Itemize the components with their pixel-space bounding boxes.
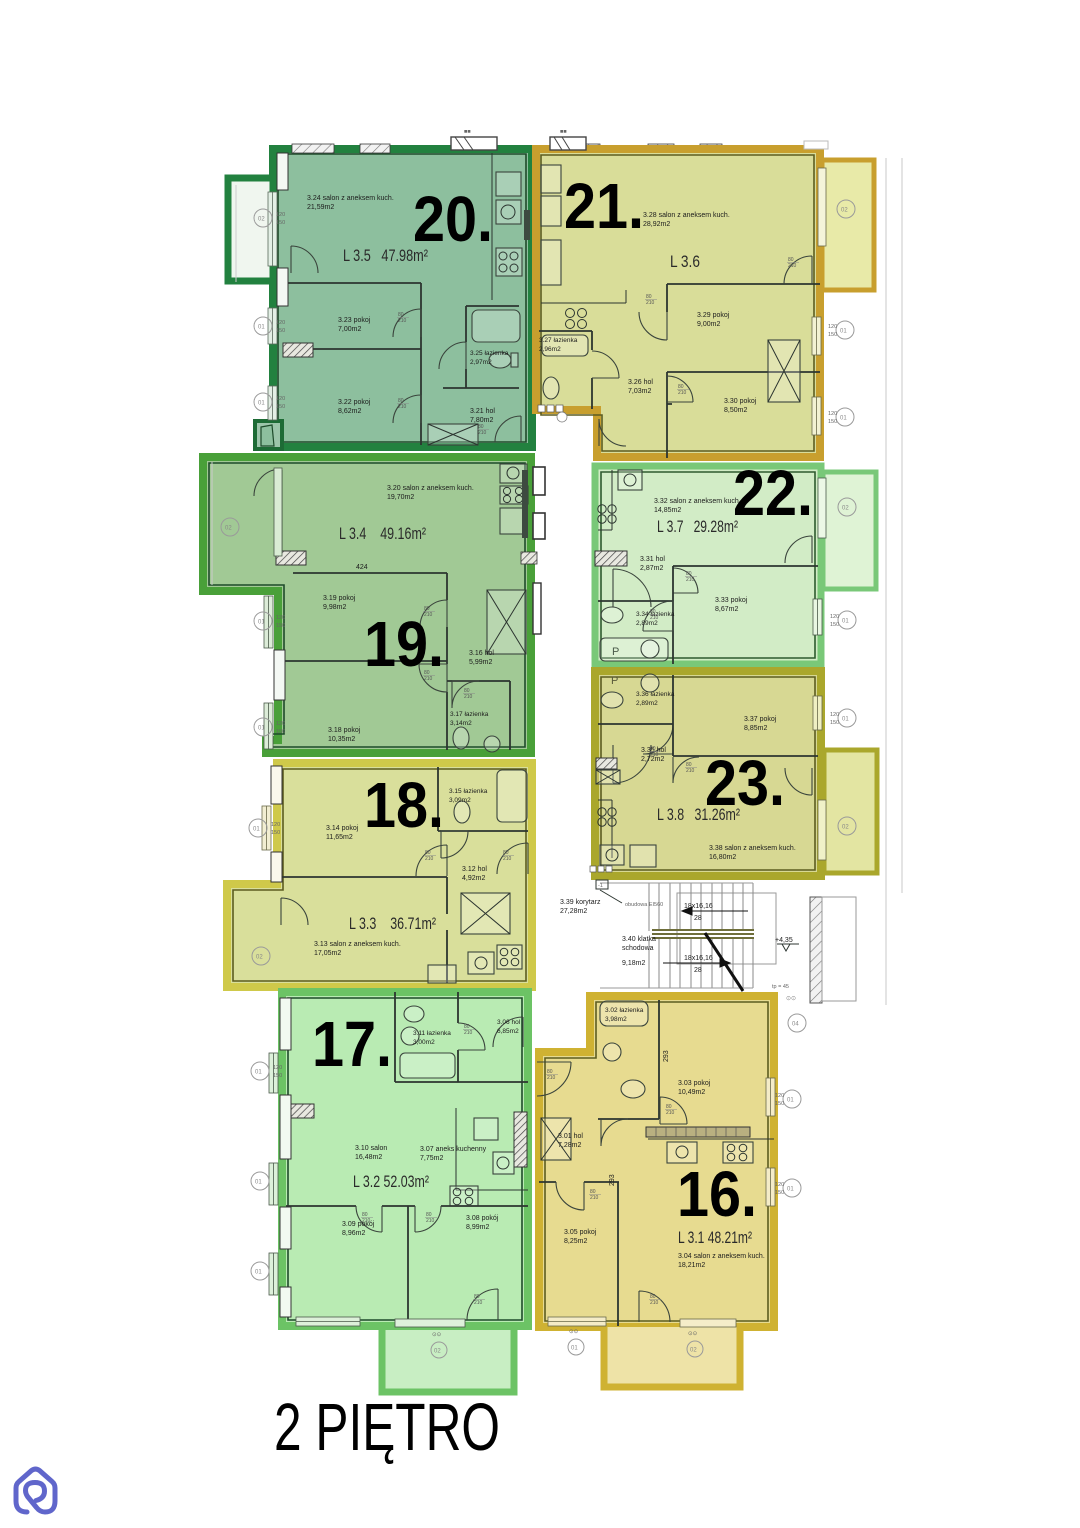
svg-text:19,70m2: 19,70m2 [387, 494, 414, 501]
svg-text:28: 28 [694, 915, 702, 922]
svg-text:4,92m2: 4,92m2 [462, 875, 485, 882]
svg-text:7,80m2: 7,80m2 [470, 417, 493, 424]
svg-text:210: 210 [686, 768, 695, 774]
svg-text:120: 120 [830, 712, 839, 718]
svg-text:210: 210 [686, 577, 695, 583]
svg-text:3.24 salon z aneksem kuch.: 3.24 salon z aneksem kuch. [307, 195, 394, 202]
svg-text:11,65m2: 11,65m2 [326, 834, 353, 841]
svg-text:2,96m2: 2,96m2 [539, 346, 561, 353]
svg-text:293: 293 [609, 1174, 616, 1186]
svg-text:210: 210 [547, 1075, 556, 1081]
svg-text:6,85m2: 6,85m2 [497, 1028, 519, 1035]
svg-text:schodowa: schodowa [622, 945, 654, 952]
svg-text:21.: 21. [564, 170, 644, 242]
svg-text:3,98m2: 3,98m2 [605, 1016, 627, 1023]
svg-text:02: 02 [690, 1348, 697, 1354]
svg-text:8,85m2: 8,85m2 [744, 725, 767, 732]
svg-text:210: 210 [398, 404, 407, 410]
svg-text:150: 150 [830, 622, 839, 628]
svg-text:2,89m2: 2,89m2 [636, 620, 658, 627]
svg-text:3.10 salon: 3.10 salon [355, 1145, 387, 1152]
svg-text:3.03 pokoj: 3.03 pokoj [678, 1080, 711, 1087]
svg-text:16,80m2: 16,80m2 [709, 854, 736, 861]
svg-text:01: 01 [258, 401, 265, 407]
svg-text:3.30 pokoj: 3.30 pokoj [724, 398, 757, 405]
svg-text:8,25m2: 8,25m2 [564, 1238, 587, 1245]
svg-text:3.21 hol: 3.21 hol [470, 408, 495, 415]
svg-text:19.: 19. [364, 608, 444, 680]
svg-text:8,99m2: 8,99m2 [466, 1224, 489, 1231]
svg-text:L 3.4 49.16m²: L 3.4 49.16m² [339, 524, 426, 543]
svg-text:tp = 45: tp = 45 [772, 984, 789, 990]
svg-text:3.32 salon z aneksem kuch.: 3.32 salon z aneksem kuch. [654, 498, 741, 505]
svg-text:02: 02 [434, 1349, 441, 1355]
svg-text:01: 01 [253, 827, 260, 833]
svg-text:18.: 18. [364, 769, 444, 841]
svg-text:3.04 salon z aneksem kuch.: 3.04 salon z aneksem kuch. [678, 1253, 765, 1260]
svg-text:01: 01 [840, 329, 847, 335]
svg-text:150: 150 [828, 332, 837, 338]
svg-text:7,28m2: 7,28m2 [558, 1142, 581, 1149]
svg-text:02: 02 [225, 526, 232, 532]
svg-text:02: 02 [841, 208, 848, 214]
svg-text:17.: 17. [312, 1008, 392, 1080]
svg-text:3.23 pokoj: 3.23 pokoj [338, 317, 371, 324]
svg-text:14,85m2: 14,85m2 [654, 507, 681, 514]
svg-text:01: 01 [842, 619, 849, 625]
svg-text:150: 150 [830, 720, 839, 726]
svg-text:3.20 salon z aneksem kuch.: 3.20 salon z aneksem kuch. [387, 485, 474, 492]
svg-text:210: 210 [503, 856, 512, 862]
svg-text:210: 210 [478, 430, 487, 436]
svg-text:21,59m2: 21,59m2 [307, 204, 334, 211]
svg-text:01: 01 [842, 717, 849, 723]
svg-text:02: 02 [842, 825, 849, 831]
svg-text:210: 210 [666, 1110, 675, 1116]
svg-text:8,67m2: 8,67m2 [715, 606, 738, 613]
svg-text:20.: 20. [413, 183, 493, 255]
svg-text:L 3.1 48.21m²: L 3.1 48.21m² [678, 1228, 752, 1247]
svg-text:18x16,16: 18x16,16 [684, 903, 713, 910]
svg-text:2,97m2: 2,97m2 [470, 359, 492, 366]
svg-text:23.: 23. [705, 747, 785, 819]
svg-text:10,49m2: 10,49m2 [678, 1089, 705, 1096]
svg-text:7,75m2: 7,75m2 [420, 1155, 443, 1162]
svg-text:01: 01 [787, 1187, 794, 1193]
svg-text:8,62m2: 8,62m2 [338, 408, 361, 415]
svg-text:02: 02 [842, 506, 849, 512]
svg-text:7,00m2: 7,00m2 [338, 326, 361, 333]
svg-text:3.22 pokoj: 3.22 pokoj [338, 399, 371, 406]
svg-text:120: 120 [276, 320, 285, 326]
svg-text:9,00m2: 9,00m2 [697, 321, 720, 328]
svg-text:⊙⊙: ⊙⊙ [688, 1331, 698, 1337]
svg-text:17,05m2: 17,05m2 [314, 950, 341, 957]
svg-text:16.: 16. [677, 1158, 757, 1230]
svg-text:3.19 pokoj: 3.19 pokoj [323, 595, 356, 602]
svg-text:3.25 łazienka: 3.25 łazienka [470, 350, 509, 357]
svg-text:150: 150 [775, 1101, 784, 1107]
svg-text:210: 210 [425, 856, 434, 862]
svg-text:120: 120 [276, 212, 285, 218]
svg-text:3.08 pokój: 3.08 pokój [466, 1215, 499, 1222]
svg-text:3.36 łazienka: 3.36 łazienka [636, 691, 675, 698]
svg-text:3,14m2: 3,14m2 [450, 720, 472, 727]
svg-text:150: 150 [276, 328, 285, 334]
svg-text:3.28 salon z aneksem kuch.: 3.28 salon z aneksem kuch. [643, 212, 730, 219]
svg-text:210: 210 [464, 694, 473, 700]
svg-text:210: 210 [398, 318, 407, 324]
svg-text:3.37 pokoj: 3.37 pokoj [744, 716, 777, 723]
svg-text:10,35m2: 10,35m2 [328, 736, 355, 743]
svg-text:3.14 pokoj: 3.14 pokoj [326, 825, 359, 832]
svg-text:P: P [611, 675, 618, 687]
svg-text:3.29 pokoj: 3.29 pokoj [697, 312, 730, 319]
svg-text:3.01 hol: 3.01 hol [558, 1133, 583, 1140]
svg-text:01: 01 [255, 1070, 262, 1076]
svg-text:3.07 aneks kuchenny: 3.07 aneks kuchenny [420, 1146, 487, 1153]
svg-text:120: 120 [276, 721, 285, 727]
svg-text:210: 210 [590, 1195, 599, 1201]
svg-text:210: 210 [426, 1218, 435, 1224]
svg-text:3.12 hol: 3.12 hol [462, 866, 487, 873]
svg-text:02: 02 [258, 217, 265, 223]
svg-text:2 PIĘTRO: 2 PIĘTRO [274, 1390, 500, 1465]
svg-text:28,92m2: 28,92m2 [643, 221, 670, 228]
svg-text:01: 01 [258, 726, 265, 732]
svg-text:3.38 salon z aneksem kuch.: 3.38 salon z aneksem kuch. [709, 845, 796, 852]
svg-text:L 3.2 52.03m²: L 3.2 52.03m² [353, 1172, 429, 1191]
svg-text:3.33 pokoj: 3.33 pokoj [715, 597, 748, 604]
svg-text:210: 210 [788, 263, 797, 269]
svg-text:01: 01 [258, 620, 265, 626]
svg-text:210: 210 [646, 300, 655, 306]
svg-text:120: 120 [271, 822, 280, 828]
svg-text:150: 150 [775, 1190, 784, 1196]
svg-text:210: 210 [650, 1300, 659, 1306]
svg-text:120: 120 [273, 1065, 282, 1071]
svg-text:3.15 łazienka: 3.15 łazienka [449, 788, 488, 795]
svg-text:150: 150 [276, 220, 285, 226]
svg-text:210: 210 [650, 752, 659, 758]
svg-text:01: 01 [255, 1270, 262, 1276]
svg-text:9,98m2: 9,98m2 [323, 604, 346, 611]
svg-text:150: 150 [276, 623, 285, 629]
svg-text:120: 120 [775, 1182, 784, 1188]
svg-text:3.18 pokoj: 3.18 pokoj [328, 727, 361, 734]
svg-text:3.16 hol: 3.16 hol [469, 650, 494, 657]
svg-text:120: 120 [828, 324, 837, 330]
svg-text:01: 01 [840, 416, 847, 422]
svg-text:-1: -1 [598, 883, 603, 889]
svg-text:18,21m2: 18,21m2 [678, 1262, 705, 1269]
svg-text:3.26 hol: 3.26 hol [628, 379, 653, 386]
svg-text:01: 01 [255, 1180, 262, 1186]
svg-text:3.27 łazienka: 3.27 łazienka [539, 337, 578, 344]
svg-text:8,96m2: 8,96m2 [342, 1230, 365, 1237]
svg-text:01: 01 [258, 325, 265, 331]
svg-text:L 3.7 29.28m²: L 3.7 29.28m² [657, 517, 738, 536]
svg-text:210: 210 [650, 615, 659, 621]
svg-text:3.40 klatka: 3.40 klatka [622, 936, 656, 943]
svg-text:210: 210 [362, 1218, 371, 1224]
svg-text:293: 293 [663, 1050, 670, 1062]
svg-text:9,18m2: 9,18m2 [622, 960, 645, 967]
svg-text:120: 120 [830, 614, 839, 620]
svg-text:18x16,16: 18x16,16 [684, 955, 713, 962]
svg-text:5,99m2: 5,99m2 [469, 659, 492, 666]
svg-text:120: 120 [276, 396, 285, 402]
svg-text:3.13 salon z aneksem kuch.: 3.13 salon z aneksem kuch. [314, 941, 401, 948]
svg-text:3.11 łazienka: 3.11 łazienka [413, 1030, 451, 1037]
svg-text:obudowa EI560: obudowa EI560 [625, 902, 663, 908]
svg-text:210: 210 [464, 1030, 473, 1036]
svg-text:2,89m2: 2,89m2 [636, 700, 658, 707]
svg-text:22.: 22. [733, 457, 813, 529]
svg-text:424: 424 [356, 564, 368, 571]
svg-text:150: 150 [273, 1073, 282, 1079]
svg-text:3.02 łazienka: 3.02 łazienka [605, 1007, 644, 1014]
svg-text:3.39 korytarz: 3.39 korytarz [560, 899, 601, 906]
svg-text:3.06 hol: 3.06 hol [497, 1019, 521, 1026]
svg-text:L 3.3 36.71m²: L 3.3 36.71m² [349, 914, 436, 933]
svg-text:L 3.6: L 3.6 [670, 252, 700, 271]
svg-text:02: 02 [256, 955, 263, 961]
svg-text:3,00m2: 3,00m2 [413, 1039, 435, 1046]
svg-text:120: 120 [775, 1093, 784, 1099]
svg-text:7,03m2: 7,03m2 [628, 388, 651, 395]
svg-text:⊙⊙: ⊙⊙ [786, 996, 796, 1002]
svg-text:■■: ■■ [464, 129, 471, 135]
svg-text:28: 28 [694, 967, 702, 974]
svg-text:⊙⊙: ⊙⊙ [432, 1332, 442, 1338]
svg-text:P: P [612, 646, 619, 658]
svg-text:150: 150 [828, 419, 837, 425]
svg-text:2,87m2: 2,87m2 [640, 565, 663, 572]
svg-text:3.17 łazienka: 3.17 łazienka [450, 711, 489, 718]
svg-text:04: 04 [792, 1022, 799, 1028]
svg-text:27,28m2: 27,28m2 [560, 908, 587, 915]
svg-text:+4,35: +4,35 [775, 937, 793, 944]
svg-text:150: 150 [276, 729, 285, 735]
svg-text:120: 120 [828, 411, 837, 417]
svg-text:16,48m2: 16,48m2 [355, 1154, 382, 1161]
svg-text:3.05 pokoj: 3.05 pokoj [564, 1229, 597, 1236]
svg-text:150: 150 [271, 830, 280, 836]
svg-text:⊙⊙: ⊙⊙ [569, 1329, 579, 1335]
svg-text:120: 120 [276, 615, 285, 621]
svg-text:01: 01 [787, 1098, 794, 1104]
svg-text:■■: ■■ [560, 129, 567, 135]
svg-text:8,50m2: 8,50m2 [724, 407, 747, 414]
svg-text:210: 210 [474, 1300, 483, 1306]
svg-text:150: 150 [276, 404, 285, 410]
svg-text:3.31 hol: 3.31 hol [640, 556, 665, 563]
svg-text:01: 01 [571, 1346, 578, 1352]
svg-text:210: 210 [678, 390, 687, 396]
svg-text:3,09m2: 3,09m2 [449, 797, 471, 804]
